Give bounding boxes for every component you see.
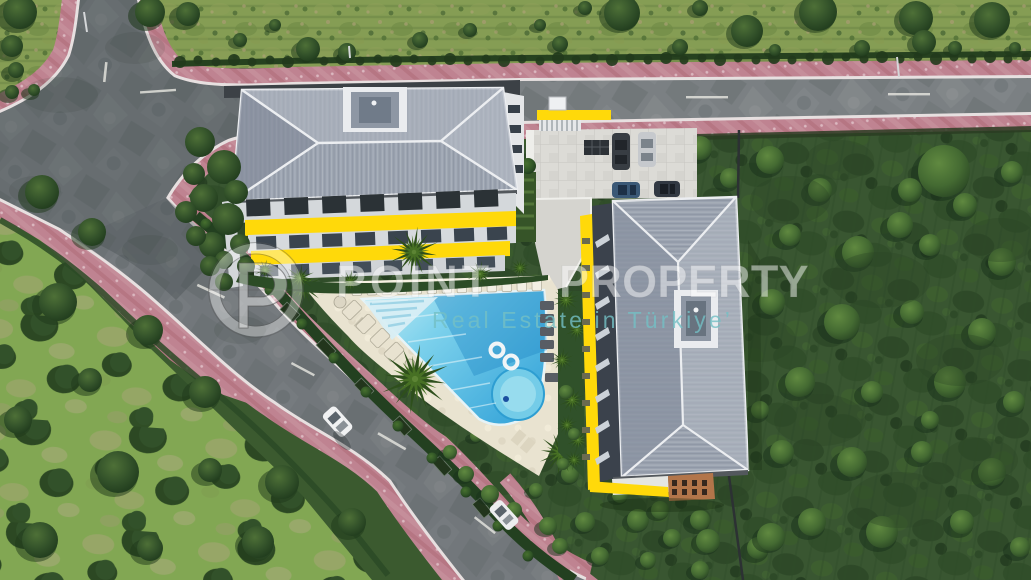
svg-text:PROPERTY: PROPERTY xyxy=(559,256,809,307)
svg-text:POINT: POINT xyxy=(336,256,493,307)
svg-text:Real Estate in Türkiye’: Real Estate in Türkiye’ xyxy=(432,307,733,333)
